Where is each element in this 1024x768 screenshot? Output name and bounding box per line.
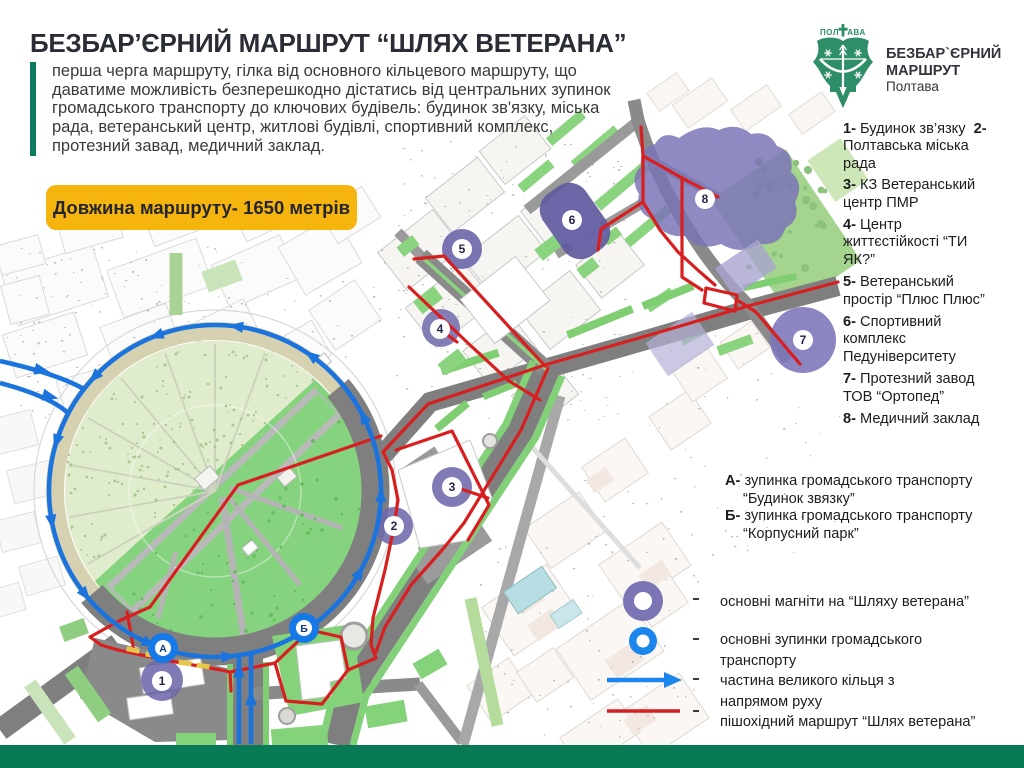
svg-text:АВА: АВА [847,28,865,37]
svg-text:3: 3 [449,480,456,494]
svg-text:5: 5 [459,242,466,256]
svg-text:4: 4 [437,322,444,336]
svg-text:1: 1 [159,674,166,688]
svg-text:6: 6 [569,213,576,227]
svg-text:А: А [159,643,167,655]
svg-text:Б: Б [300,623,308,635]
svg-text:2: 2 [391,519,398,533]
svg-text:7: 7 [800,333,807,347]
svg-text:8: 8 [702,192,709,206]
svg-text:ПОЛ: ПОЛ [820,28,839,37]
